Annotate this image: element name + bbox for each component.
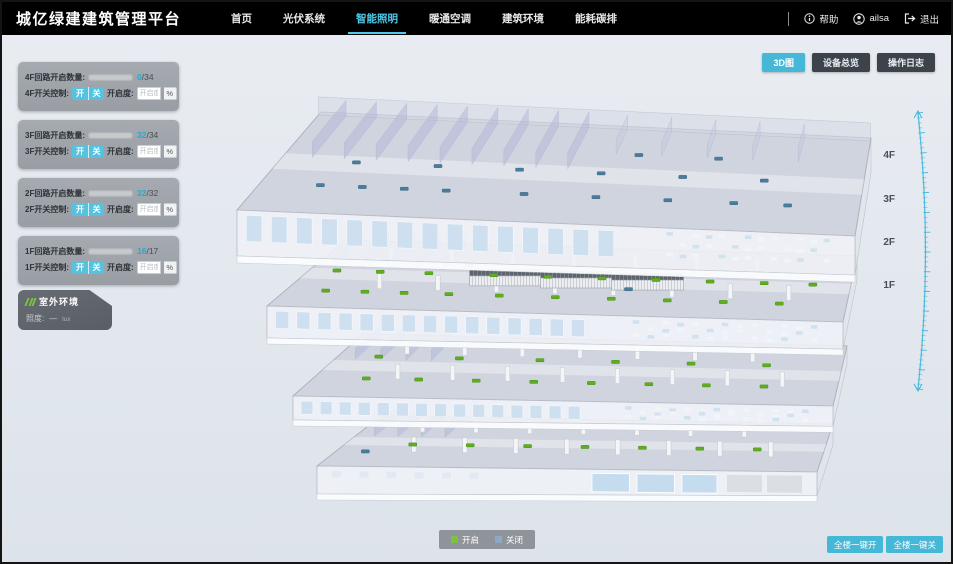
light-indicator-on[interactable] <box>607 297 615 300</box>
light-indicator-off[interactable] <box>592 196 600 199</box>
floor-label-3f[interactable]: 3F <box>883 194 895 205</box>
light-indicator-off[interactable] <box>760 179 768 182</box>
legend-on-label: 开启 <box>462 534 479 546</box>
floor-zoom-scale[interactable] <box>899 105 939 397</box>
switch-off-button[interactable]: 关 <box>88 145 104 158</box>
outdoor-env-title: 室外环境 <box>39 295 79 308</box>
nav-item-hvac[interactable]: 暖通空调 <box>427 0 473 37</box>
user-menu[interactable]: ailsa <box>853 13 889 25</box>
app-title: 城亿绿建建筑管理平台 <box>16 8 181 29</box>
circuit-count-value: 32/34 <box>137 130 158 140</box>
light-indicator-on[interactable] <box>400 291 408 294</box>
building-3d-view[interactable] <box>205 94 905 522</box>
light-indicator-on[interactable] <box>455 357 463 360</box>
light-indicator-on[interactable] <box>652 278 660 281</box>
light-indicator-on[interactable] <box>702 384 710 387</box>
dim-input[interactable] <box>137 145 161 158</box>
help-label: 帮助 <box>819 12 838 26</box>
light-indicator-on[interactable] <box>638 446 646 449</box>
floor-label-2f[interactable]: 2F <box>883 237 895 248</box>
circuit-count-label: 1F回路开启数量: <box>25 246 85 257</box>
light-indicator-on[interactable] <box>495 294 503 297</box>
legend-off-swatch <box>495 536 502 543</box>
percent-button[interactable]: % <box>164 87 177 100</box>
light-indicator-on[interactable] <box>753 448 761 451</box>
circuit-count-value: 16/17 <box>137 246 158 256</box>
light-indicator-off[interactable] <box>400 187 408 190</box>
light-indicator-off[interactable] <box>434 164 442 167</box>
light-indicator-on[interactable] <box>706 280 714 283</box>
circuit-progress-bar <box>88 74 133 81</box>
light-indicator-on[interactable] <box>696 447 704 450</box>
switch-off-button[interactable]: 关 <box>88 87 104 100</box>
light-indicator-on[interactable] <box>466 444 474 447</box>
light-indicator-on[interactable] <box>425 272 433 275</box>
light-indicator-off[interactable] <box>442 189 450 192</box>
logout-label: 退出 <box>920 12 939 26</box>
light-indicator-on[interactable] <box>760 282 768 285</box>
light-indicator-off[interactable] <box>730 202 738 205</box>
light-indicator-on[interactable] <box>445 293 453 296</box>
nav-item-home[interactable]: 首页 <box>229 0 254 37</box>
switch-control-label: 3F开关控制: <box>25 146 69 157</box>
nav-item-pv-system[interactable]: 光伏系统 <box>281 0 327 37</box>
circuit-count-value: 0/34 <box>137 72 154 82</box>
light-indicator-off[interactable] <box>664 199 672 202</box>
light-indicator-on[interactable] <box>611 360 619 363</box>
light-indicator-on[interactable] <box>760 385 768 388</box>
legend-off: 关闭 <box>495 534 523 546</box>
nav-item-building-env[interactable]: 建筑环境 <box>500 0 546 37</box>
switch-on-button[interactable]: 开 <box>72 145 88 158</box>
switch-control-label: 2F开关控制: <box>25 204 69 215</box>
bottom-buttons: 全楼一键开 全楼一键关 <box>827 536 943 553</box>
light-indicator-off[interactable] <box>352 161 360 164</box>
help-icon <box>804 13 815 24</box>
circuit-count-label: 2F回路开启数量: <box>25 188 85 199</box>
switch-control-label: 1F开关控制: <box>25 262 69 273</box>
light-indicator-on[interactable] <box>490 274 498 277</box>
light-indicator-on[interactable] <box>544 275 552 278</box>
light-indicator-on[interactable] <box>415 378 423 381</box>
floor-panel-1f: 1F回路开启数量: 16/17 1F开关控制: 开关 开启度: % <box>18 236 179 285</box>
dim-input[interactable] <box>137 87 161 100</box>
light-status-legend: 开启 关闭 <box>439 530 535 549</box>
switch-on-button[interactable]: 开 <box>72 261 88 274</box>
switch-on-button[interactable]: 开 <box>72 87 88 100</box>
device-overview-button[interactable]: 设备总览 <box>812 53 870 72</box>
dim-label: 开启度: <box>107 262 134 273</box>
circuit-count-value: 32/32 <box>137 188 158 198</box>
light-indicator-on[interactable] <box>598 277 606 280</box>
legend-on-swatch <box>451 536 458 543</box>
percent-button[interactable]: % <box>164 145 177 158</box>
switch-control-label: 4F开关控制: <box>25 88 69 99</box>
light-indicator-on[interactable] <box>362 377 370 380</box>
help-button[interactable]: 帮助 <box>804 12 838 26</box>
light-indicator-on[interactable] <box>587 381 595 384</box>
view-3d-button[interactable]: 3D图 <box>762 53 805 72</box>
topbar-right: 帮助 ailsa 退出 <box>788 12 939 26</box>
light-indicator-on[interactable] <box>581 445 589 448</box>
user-avatar-icon <box>853 13 865 25</box>
light-indicator-on[interactable] <box>536 359 544 362</box>
app-window: 城亿绿建建筑管理平台 首页 光伏系统 智能照明 暖通空调 建筑环境 能耗碳排 帮… <box>0 0 953 564</box>
illuminance-label: 照度: <box>26 313 44 324</box>
operation-log-button[interactable]: 操作日志 <box>877 53 935 72</box>
percent-button[interactable]: % <box>164 261 177 274</box>
light-indicator-on[interactable] <box>530 380 538 383</box>
dim-label: 开启度: <box>107 146 134 157</box>
light-indicator-on[interactable] <box>472 379 480 382</box>
dim-label: 开启度: <box>107 88 134 99</box>
logout-button[interactable]: 退出 <box>904 12 939 26</box>
legend-on: 开启 <box>451 534 479 546</box>
light-indicator-on[interactable] <box>322 289 330 292</box>
floor-panel-4f: 4F回路开启数量: 0/34 4F开关控制: 开关 开启度: % <box>18 62 179 111</box>
light-indicator-on[interactable] <box>663 299 671 302</box>
light-indicator-off[interactable] <box>784 204 792 207</box>
nav-item-energy-carbon[interactable]: 能耗碳排 <box>573 0 619 37</box>
light-indicator-on[interactable] <box>763 364 771 367</box>
light-indicator-off[interactable] <box>358 185 366 188</box>
light-indicator-on[interactable] <box>551 296 559 299</box>
view-buttons: 3D图 设备总览 操作日志 <box>762 53 935 72</box>
illuminance-value: — <box>49 314 57 323</box>
light-indicator-on[interactable] <box>375 355 383 358</box>
illuminance-unit: lux <box>62 316 70 323</box>
light-indicator-off[interactable] <box>597 172 605 175</box>
percent-button[interactable]: % <box>164 203 177 216</box>
switch-on-button[interactable]: 开 <box>72 203 88 216</box>
switch-off-button[interactable]: 关 <box>88 203 104 216</box>
top-nav-bar: 城亿绿建建筑管理平台 首页 光伏系统 智能照明 暖通空调 建筑环境 能耗碳排 帮… <box>2 2 951 35</box>
outdoor-env-icon <box>26 298 35 306</box>
light-indicator-on[interactable] <box>361 290 369 293</box>
circuit-count-label: 4F回路开启数量: <box>25 72 85 83</box>
light-indicator-on[interactable] <box>645 383 653 386</box>
light-indicator-off[interactable] <box>635 153 643 156</box>
light-indicator-off[interactable] <box>316 184 324 187</box>
circuit-progress-bar <box>88 132 133 139</box>
floor-panel-2f: 2F回路开启数量: 32/32 2F开关控制: 开关 开启度: % <box>18 178 179 227</box>
floor-3d-4F[interactable] <box>237 97 871 282</box>
light-indicator-on[interactable] <box>719 300 727 303</box>
light-indicator-on[interactable] <box>775 302 783 305</box>
floor-panel-3f: 3F回路开启数量: 32/34 3F开关控制: 开关 开启度: % <box>18 120 179 169</box>
light-indicator-on[interactable] <box>524 445 532 448</box>
legend-off-label: 关闭 <box>506 534 523 546</box>
floor-label-4f[interactable]: 4F <box>883 150 895 161</box>
light-indicator-off[interactable] <box>715 157 723 160</box>
circuit-progress-bar <box>88 248 133 255</box>
topbar-divider <box>788 12 789 26</box>
main-nav: 首页 光伏系统 智能照明 暖通空调 建筑环境 能耗碳排 <box>229 0 619 37</box>
dim-input[interactable] <box>137 261 161 274</box>
light-indicator-off[interactable] <box>520 192 528 195</box>
nav-item-smart-lighting[interactable]: 智能照明 <box>354 0 400 37</box>
switch-off-button[interactable]: 关 <box>88 261 104 274</box>
light-indicator-on[interactable] <box>333 269 341 272</box>
floor-label-1f[interactable]: 1F <box>883 280 895 291</box>
username: ailsa <box>869 13 889 24</box>
all-on-button[interactable]: 全楼一键开 <box>827 536 884 553</box>
circuit-progress-bar <box>88 190 133 197</box>
light-indicator-off[interactable] <box>516 168 524 171</box>
dim-label: 开启度: <box>107 204 134 215</box>
light-indicator-on[interactable] <box>687 362 695 365</box>
dim-input[interactable] <box>137 203 161 216</box>
light-indicator-off[interactable] <box>624 288 632 291</box>
circuit-count-label: 3F回路开启数量: <box>25 130 85 141</box>
light-indicator-on[interactable] <box>376 270 384 273</box>
outdoor-env-panel: 室外环境 照度: — lux <box>18 290 112 330</box>
light-indicator-off[interactable] <box>679 175 687 178</box>
all-off-button[interactable]: 全楼一键关 <box>886 536 943 553</box>
light-indicator-on[interactable] <box>409 443 417 446</box>
light-indicator-off[interactable] <box>361 450 369 453</box>
light-indicator-on[interactable] <box>809 283 817 286</box>
logout-icon <box>904 13 916 24</box>
